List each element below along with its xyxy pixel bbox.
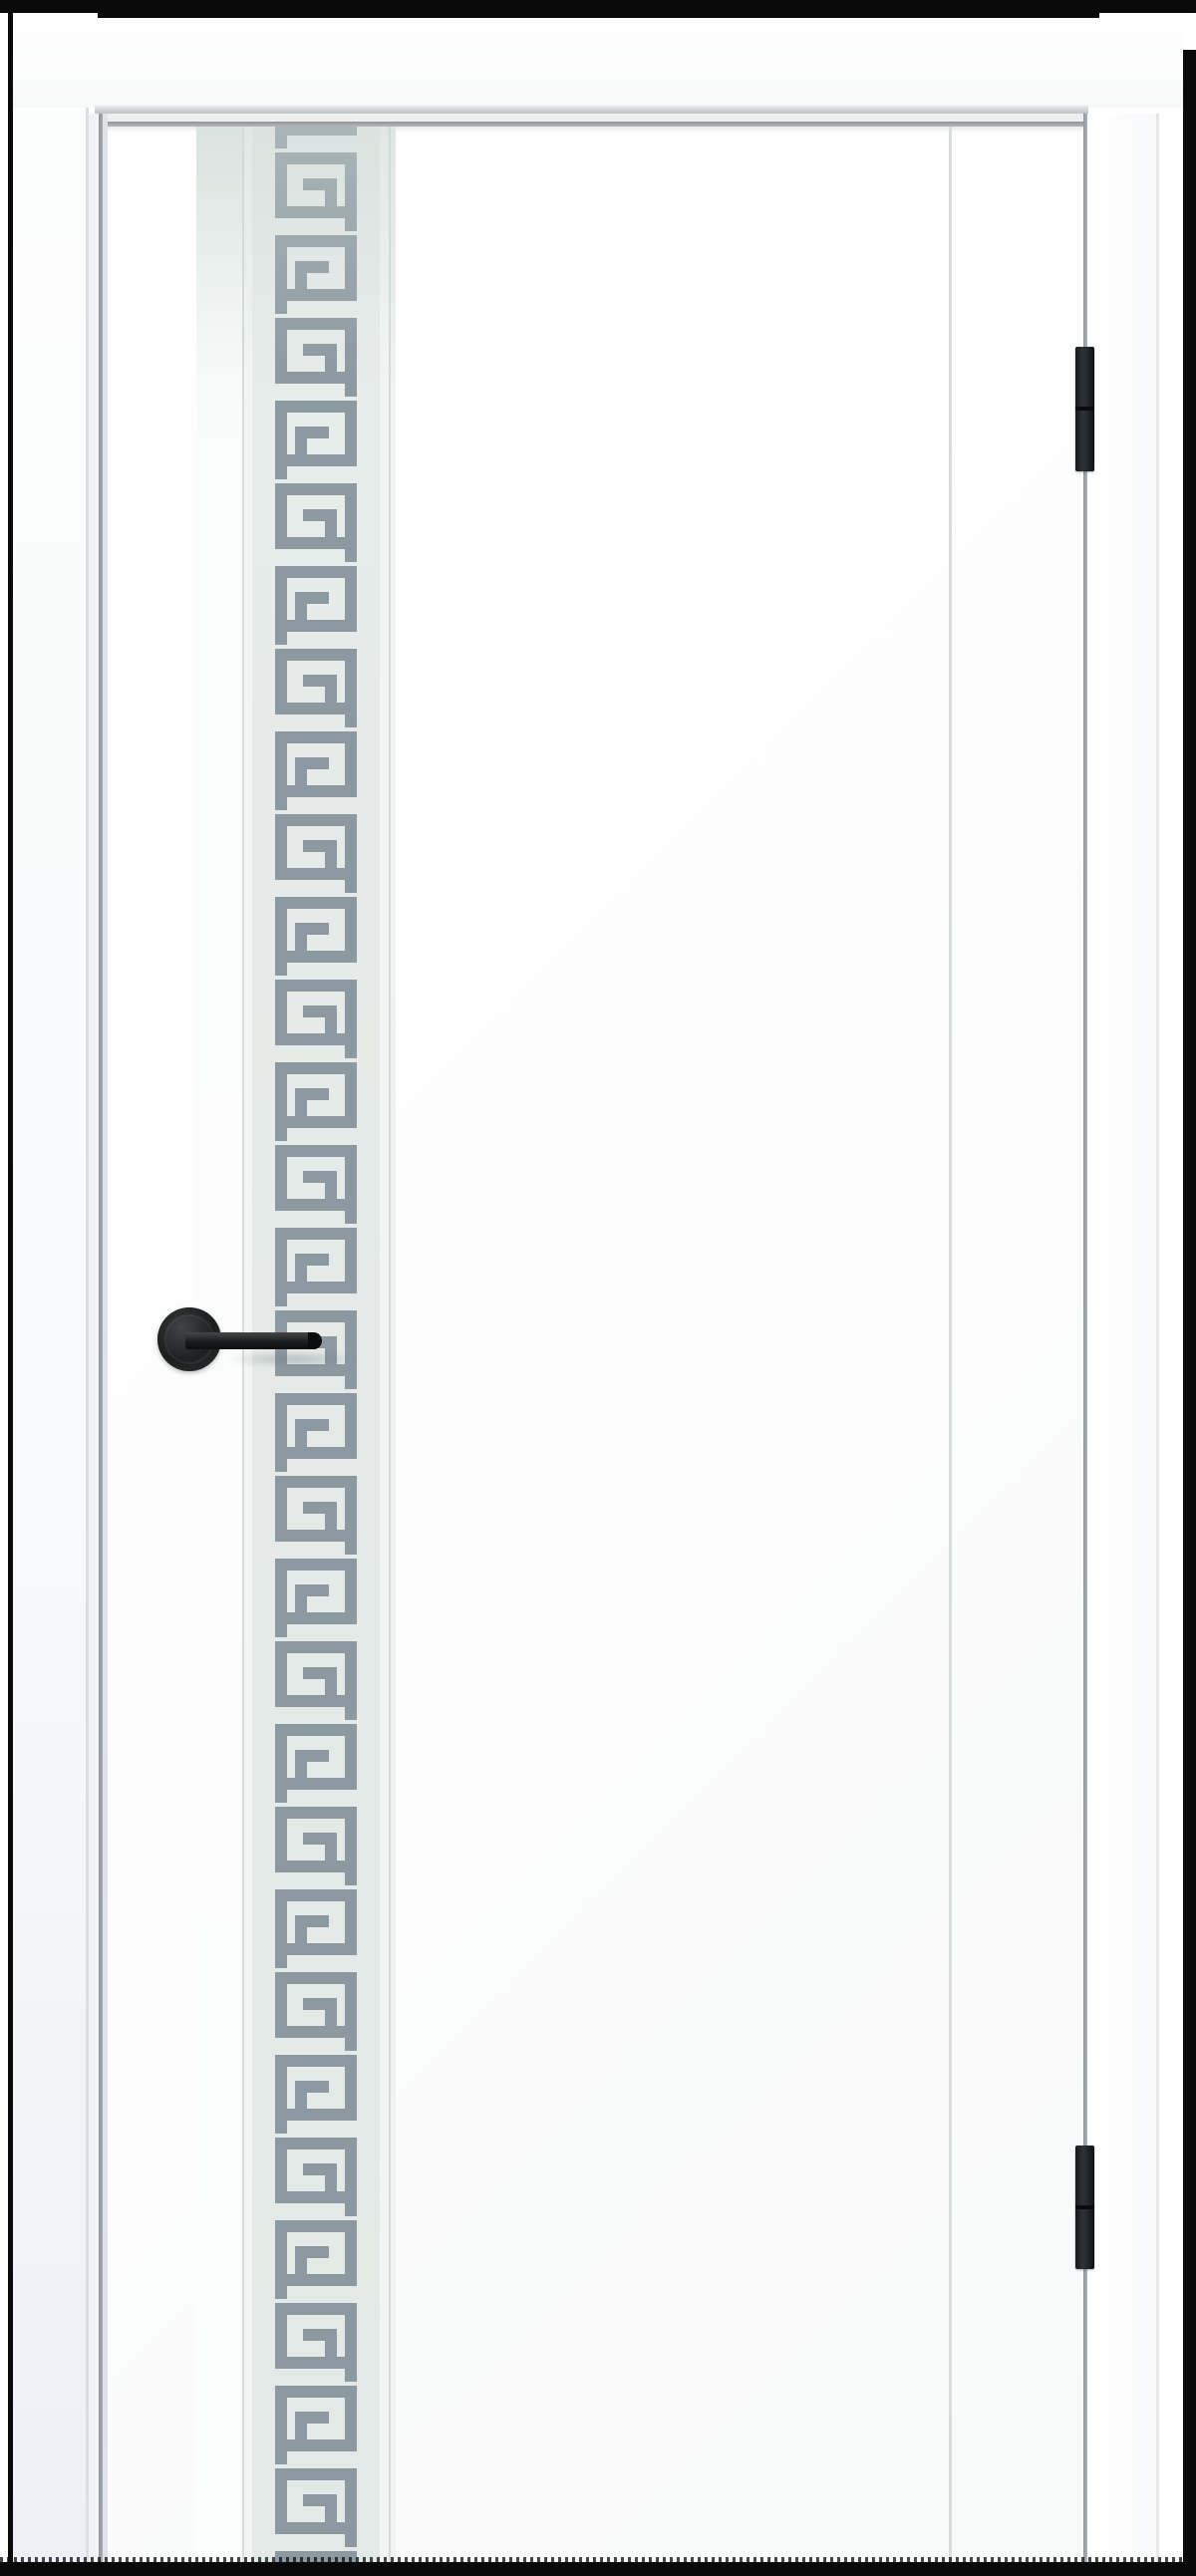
frame-reveal-left <box>89 114 99 2562</box>
frame-reveal-top <box>99 114 1088 122</box>
photo-border-top <box>98 0 1099 18</box>
handle-shadow <box>224 1351 364 1367</box>
door-product-photo <box>0 0 1196 2576</box>
frame-edge-right <box>1156 114 1159 2562</box>
photo-border-bottom <box>0 2562 1196 2576</box>
hinge-seam <box>1075 407 1094 411</box>
door-groove <box>949 127 952 2562</box>
door-handle-lever <box>185 1332 322 1349</box>
frame-casing-left <box>13 108 86 2562</box>
glass-border-band-right <box>391 127 396 2562</box>
frame-casing-right <box>1087 114 1156 2562</box>
glass-inner-band-right <box>380 127 389 2562</box>
glass-top-tint <box>196 127 396 386</box>
photo-border-left-line <box>8 13 13 2576</box>
frame-edge-top <box>95 106 1088 114</box>
hinge-upper <box>1075 347 1094 471</box>
hinge-seam <box>1075 2205 1094 2209</box>
hinge-lower <box>1075 2146 1094 2269</box>
photo-border-right-strip <box>1183 50 1196 2576</box>
frame-casing-top <box>13 13 1183 108</box>
